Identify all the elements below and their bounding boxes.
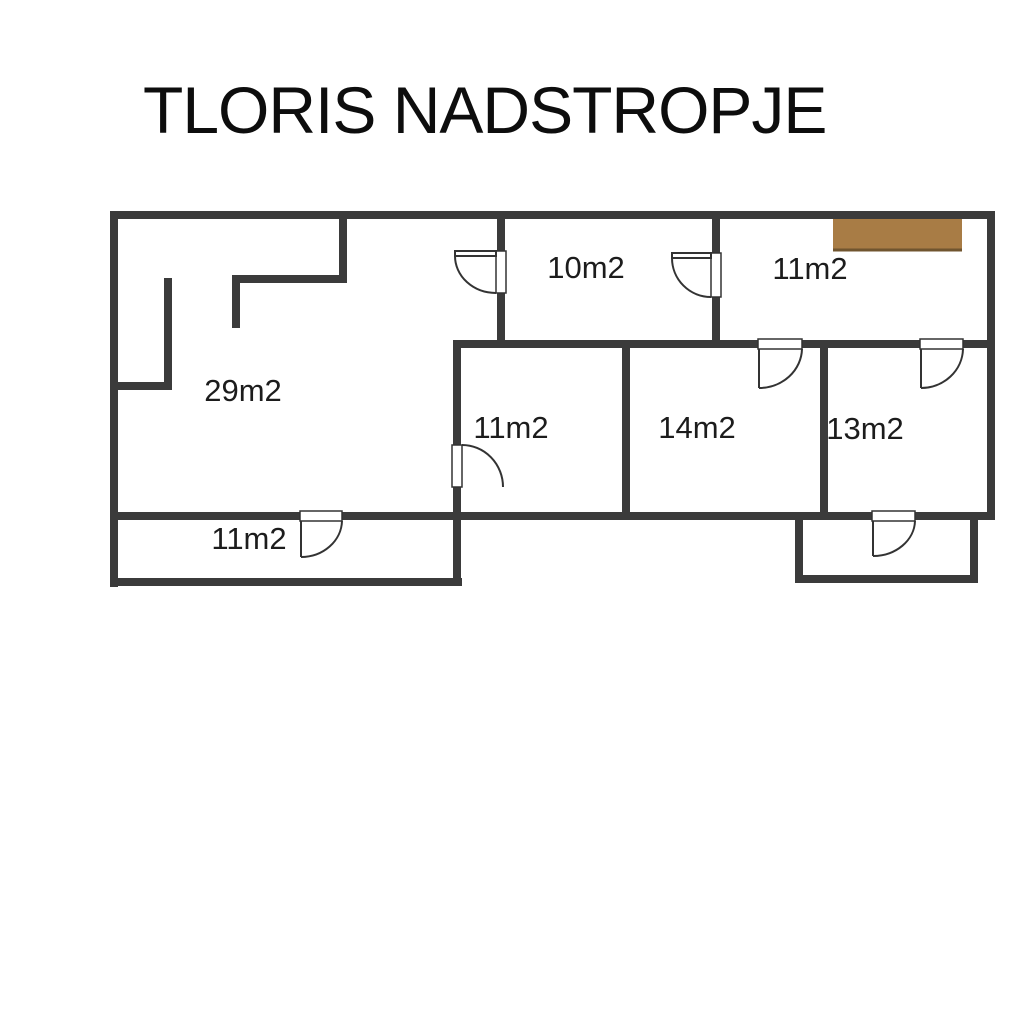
room-label-11m2-middle: 11m2 xyxy=(473,410,548,445)
door-arc xyxy=(301,521,342,557)
wall-29m2-step-vertical-left xyxy=(232,275,240,328)
closet-fill xyxy=(833,219,962,251)
door-icon-13m2-to-balcony xyxy=(873,521,915,556)
wall-outer-left xyxy=(110,211,118,587)
door-arc xyxy=(873,521,915,556)
door-leaf xyxy=(672,253,711,258)
wall-mid-horizontal xyxy=(453,340,995,348)
door-arc xyxy=(759,349,802,388)
closet-rect xyxy=(833,219,962,251)
floor-plan-drawing: 29m2 10m2 11m2 11m2 14m2 13m2 11m2 xyxy=(0,0,1024,1024)
wall-balcony-right xyxy=(970,512,978,583)
door-icon-29m2-to-11m2-middle xyxy=(462,445,503,487)
wall-29m2-step-horizontal xyxy=(232,275,347,283)
opening-10m2-11m2 xyxy=(711,253,721,297)
wall-balcony-left xyxy=(795,512,803,583)
door-icon-11m2-top-right-to-14m2 xyxy=(759,349,802,388)
opening-13m2 xyxy=(920,339,963,349)
room-label-10m2: 10m2 xyxy=(547,250,625,285)
wall-29m2-step-vertical-right xyxy=(339,211,347,283)
opening-14m2 xyxy=(758,339,802,349)
floor-plan-page: TLORIS NADSTROPJE xyxy=(0,0,1024,1024)
wall-29m2-nook-vertical xyxy=(164,278,172,390)
door-icon-10m2-to-11m2-top-right xyxy=(672,253,711,297)
room-label-13m2: 13m2 xyxy=(826,411,904,446)
door-symbols xyxy=(301,251,963,557)
wall-corridor-bottom xyxy=(110,578,462,586)
wall-main-bottom xyxy=(110,512,995,520)
door-arc xyxy=(462,445,503,487)
opening-11m2-middle xyxy=(452,445,462,487)
opening-29m2-10m2 xyxy=(496,251,506,293)
door-icon-29m2-to-11m2-bottom xyxy=(301,521,342,557)
door-icon-29m2-to-10m2 xyxy=(455,251,496,293)
door-icon-11m2-top-right-to-13m2 xyxy=(921,349,963,388)
wall-11m2-14m2 xyxy=(622,340,630,520)
door-openings xyxy=(300,251,963,521)
door-leaf xyxy=(455,251,496,256)
room-label-29m2: 29m2 xyxy=(204,373,282,408)
room-label-11m2-top-right: 11m2 xyxy=(772,251,847,286)
wall-outer-top xyxy=(110,211,995,219)
wall-outer-right xyxy=(987,211,995,520)
wall-29m2-nook-horizontal xyxy=(110,382,172,390)
opening-11m2-bottom xyxy=(300,511,342,521)
wall-balcony-bottom xyxy=(795,575,978,583)
room-label-14m2: 14m2 xyxy=(658,410,736,445)
room-label-11m2-bottom: 11m2 xyxy=(211,521,286,556)
door-arc xyxy=(455,256,496,293)
door-arc xyxy=(921,349,963,388)
door-arc xyxy=(672,258,711,297)
room-labels: 29m2 10m2 11m2 11m2 14m2 13m2 11m2 xyxy=(204,250,904,556)
opening-balcony xyxy=(872,511,915,521)
